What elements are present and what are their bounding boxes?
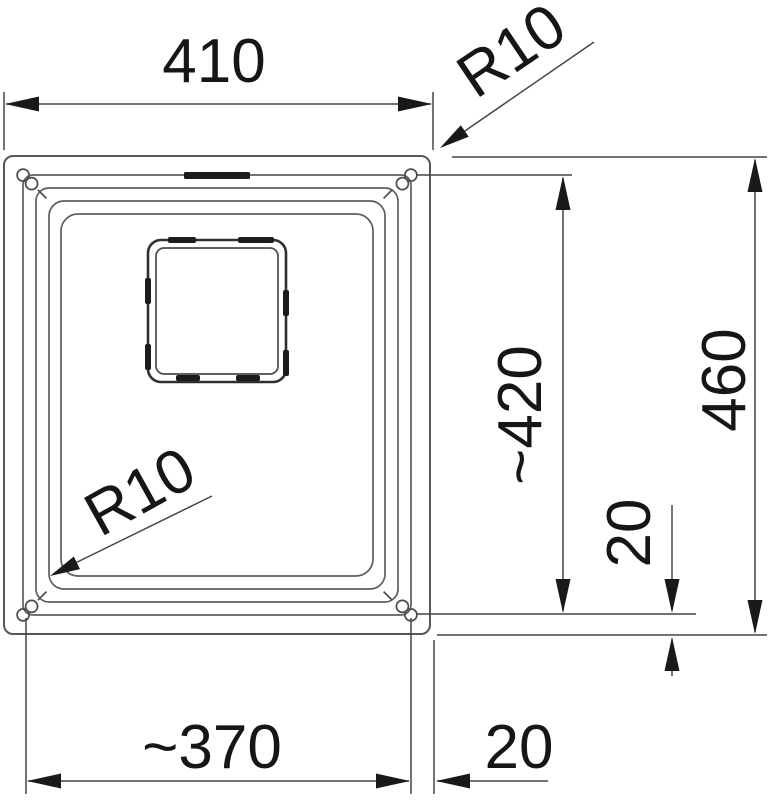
arrowhead-up-icon (556, 176, 571, 210)
dimension-label-inner-width: ~370 (142, 713, 282, 782)
drain-inner-edge (156, 248, 278, 374)
arrowhead-left-icon (27, 774, 61, 789)
dimension-label-inner-length: ~420 (486, 345, 555, 485)
dimension-outer-width: 410 (4, 27, 433, 150)
arrowhead-up-icon (748, 158, 763, 192)
arrowhead-right-icon (376, 774, 410, 789)
bowl-slope-line-1 (36, 188, 398, 602)
overflow-slot (184, 172, 250, 179)
arrowhead-icon (440, 125, 469, 148)
sink-technical-drawing: 410 R10 ~420 460 20 R10 (0, 0, 770, 800)
dimension-inner-width: ~370 (26, 618, 411, 794)
dimension-label-outer-width: 410 (162, 27, 265, 96)
arrowhead-down-icon (556, 579, 571, 613)
arrowhead-right-icon (398, 97, 432, 112)
technical-drawing-page: 410 R10 ~420 460 20 R10 (0, 0, 770, 800)
dimension-label-rim-offset-bottom: 20 (485, 713, 554, 782)
dimension-label-bowl-corner-radius: R10 (74, 434, 207, 549)
dimension-label-outer-length: 460 (690, 328, 759, 431)
arrowhead-left-icon (5, 97, 39, 112)
leader-outer-corner-radius: R10 (440, 0, 594, 148)
drain-outer-edge (148, 240, 286, 382)
arrowhead-down-icon (665, 579, 680, 613)
leader-bowl-corner-radius: R10 (50, 434, 212, 576)
dimension-label-outer-corner-radius: R10 (445, 0, 578, 111)
bowl-corner-facets (17, 169, 417, 621)
dimension-rim-offset-bottom: 20 (434, 640, 553, 794)
dimension-rim-offset-right: 20 (595, 499, 680, 676)
drain-square-group (145, 237, 289, 382)
drain-clip-marks (145, 237, 289, 381)
arrowhead-up-icon (665, 637, 680, 671)
dimension-label-rim-offset-right: 20 (595, 499, 664, 568)
arrowhead-icon (50, 557, 80, 577)
arrowhead-down-icon (748, 600, 763, 634)
arrowhead-left-icon (436, 774, 470, 789)
